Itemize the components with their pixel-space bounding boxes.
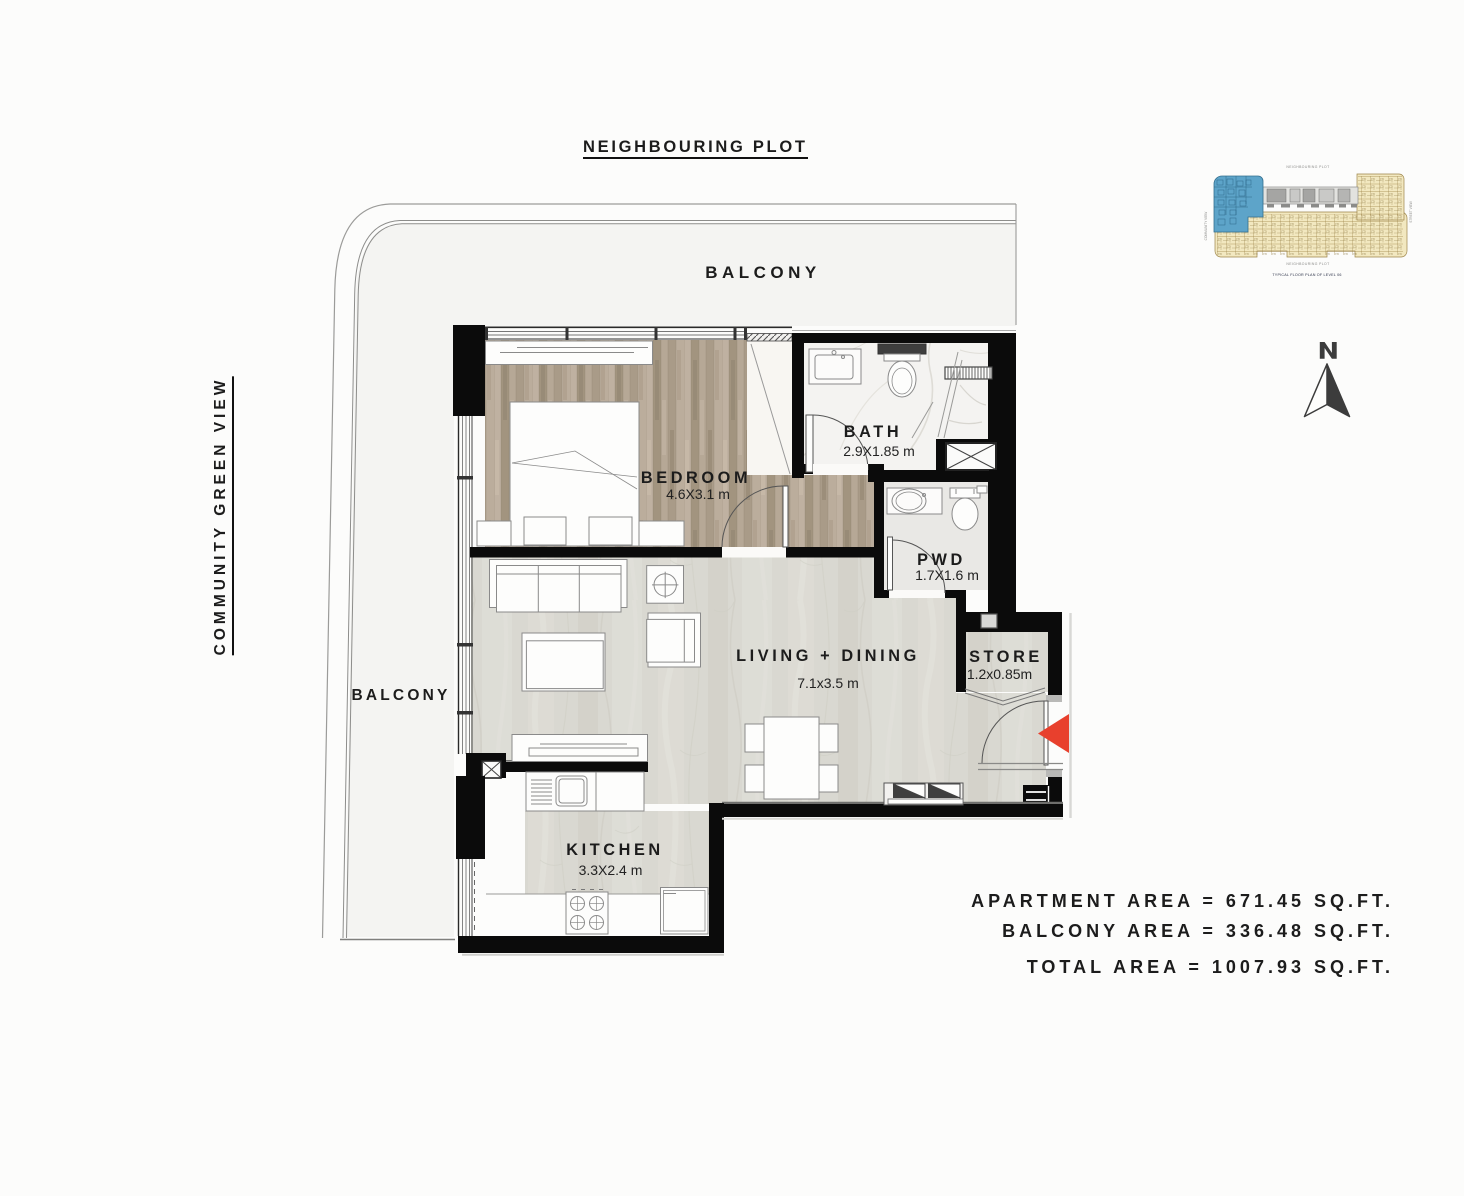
svg-text:TYPICAL FLOOR PLAN OF LEVEL 06: TYPICAL FLOOR PLAN OF LEVEL 06 xyxy=(1272,273,1341,277)
svg-text:NEIGHBOURING PLOT: NEIGHBOURING PLOT xyxy=(1286,262,1329,266)
svg-text:COMMUNITY VIEW: COMMUNITY VIEW xyxy=(1204,212,1208,241)
svg-text:STREET VIEW: STREET VIEW xyxy=(1409,201,1413,223)
svg-text:NEIGHBOURING PLOT: NEIGHBOURING PLOT xyxy=(1286,165,1329,169)
